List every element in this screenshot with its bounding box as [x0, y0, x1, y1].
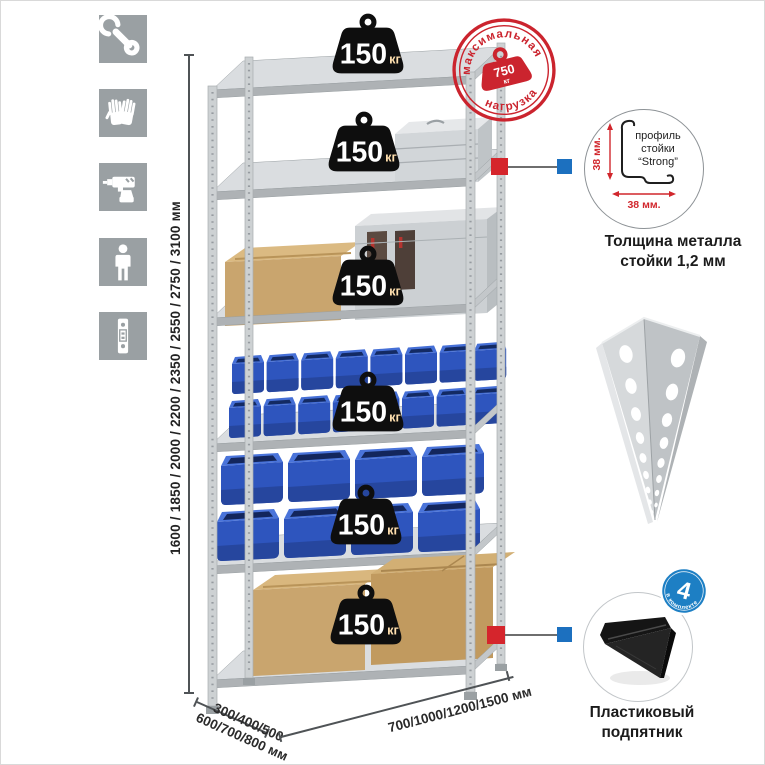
svg-text:150: 150 [336, 136, 383, 168]
svg-text:150: 150 [340, 396, 387, 428]
svg-text:38 мм.: 38 мм. [627, 199, 660, 211]
person-icon [99, 238, 147, 286]
shelf-load-badge: 150 кг [322, 370, 414, 436]
marker-red-top [491, 158, 508, 175]
svg-text:150: 150 [340, 270, 387, 302]
count-badge: 4 в комплекте [659, 566, 709, 616]
stamp-kettlebell: 750 кг [474, 43, 533, 92]
infographic-canvas: 1600 / 1850 / 2000 / 2200 / 2350 / 2550 … [0, 0, 765, 765]
perforated-corner-post [596, 306, 728, 548]
plastic-foot [600, 617, 676, 678]
marker-blue-top [557, 159, 572, 174]
height-dimension-label: 1600 / 1850 / 2000 / 2200 / 2350 / 2550 … [168, 183, 186, 573]
gloves-icon [99, 89, 147, 137]
svg-text:150: 150 [338, 509, 385, 541]
svg-text:кг: кг [389, 409, 401, 424]
callout-connector-bottom [505, 634, 557, 636]
svg-text:кг: кг [387, 622, 399, 637]
shelf-load-badge: 150 кг [322, 12, 414, 78]
profile-dim-horizontal: 38 мм. [612, 191, 676, 211]
marker-blue-bottom [557, 627, 572, 642]
svg-text:кг: кг [385, 149, 397, 164]
height-dimension-line [188, 55, 190, 693]
post-profile-callout: 38 мм. 38 мм. профиль стойки “Strong” [584, 109, 704, 229]
shelf-load-badge: 150 кг [320, 583, 412, 649]
svg-text:38 мм.: 38 мм. [591, 137, 603, 170]
callout-connector-top [507, 166, 558, 168]
svg-text:кг: кг [389, 283, 401, 298]
wrench-icon [99, 15, 147, 63]
profile-caption: Толщина металла стойки 1,2 мм [578, 232, 765, 272]
shelf-load-badge: 150 кг [320, 483, 412, 549]
badge-value: 150 [340, 38, 387, 70]
profile-dim-vertical: 38 мм. [591, 123, 613, 180]
svg-text:стойки: стойки [641, 143, 675, 155]
shelf-load-badge: 150 кг [322, 244, 414, 310]
height-dimension-cap-top [184, 54, 194, 56]
badge-unit: кг [389, 51, 401, 66]
marker-red-bottom [487, 626, 505, 644]
drill-icon [99, 163, 147, 211]
rack-profile-icon [99, 312, 147, 360]
profile-label: профиль стойки “Strong” [635, 130, 681, 168]
svg-text:кг: кг [387, 522, 399, 537]
max-load-stamp: 750 кг максимальная нагрузка [448, 14, 560, 126]
svg-text:профиль: профиль [635, 130, 681, 142]
svg-text:150: 150 [338, 609, 385, 641]
svg-text:“Strong”: “Strong” [638, 156, 678, 168]
plastic-foot-caption: Пластиковый подпятник [562, 703, 722, 743]
shelf-load-badge: 150 кг [318, 110, 410, 176]
